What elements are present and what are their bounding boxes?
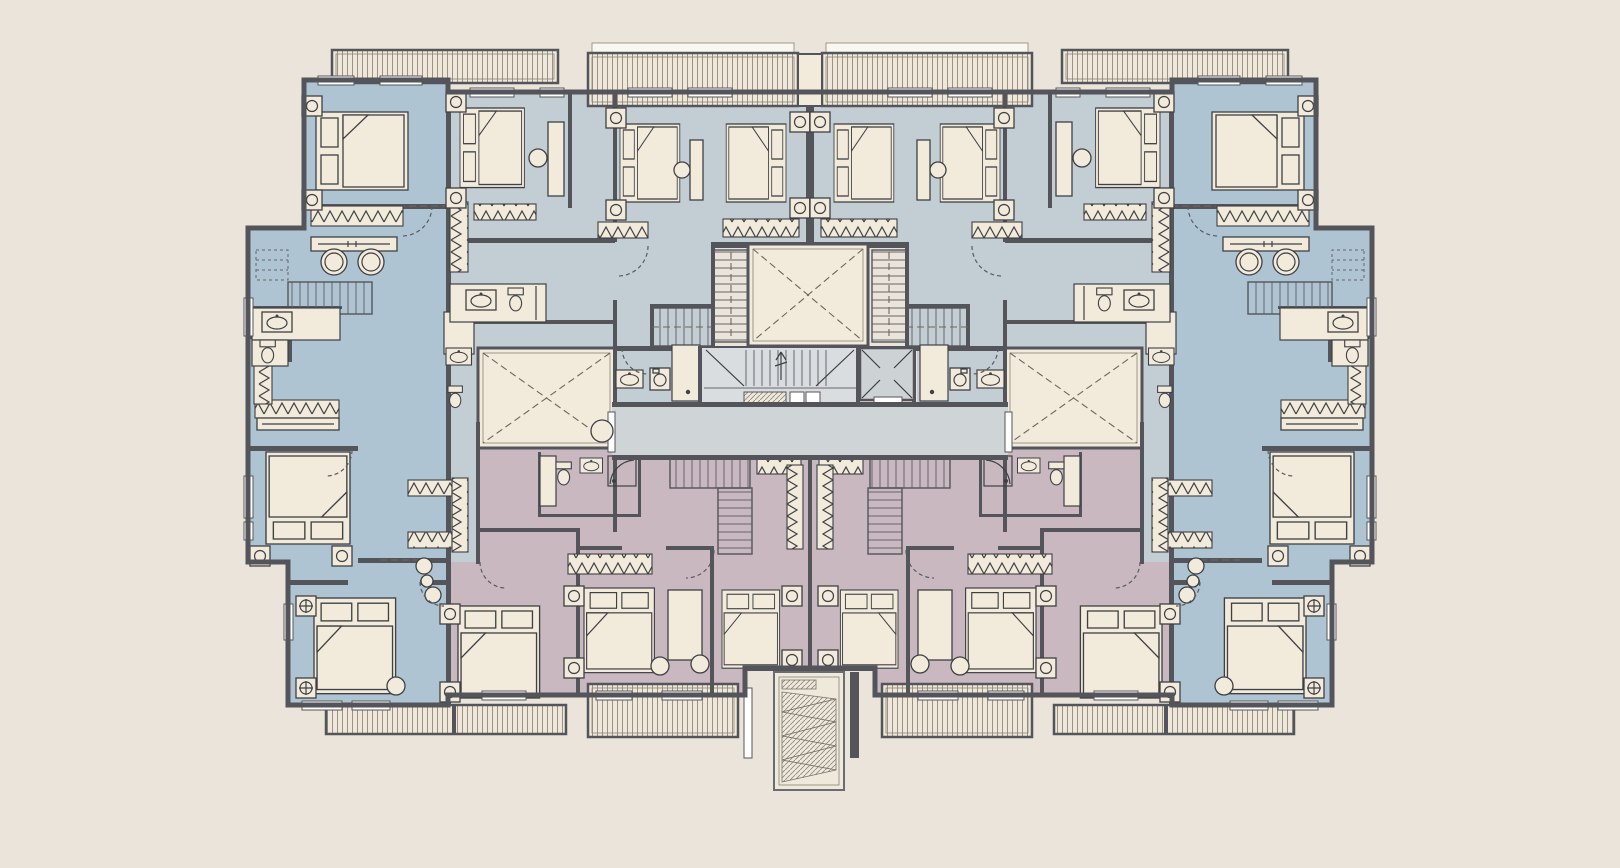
pink-party-wall: [808, 455, 812, 668]
elevator: [860, 348, 914, 403]
floor-plan-canvas: [0, 0, 1620, 868]
corridor: [591, 402, 1012, 460]
top-party-wall: [798, 54, 822, 106]
stairs-core-flank: [714, 250, 748, 342]
stairs-core-side-run: [652, 308, 712, 346]
light-well-center: [748, 244, 868, 346]
